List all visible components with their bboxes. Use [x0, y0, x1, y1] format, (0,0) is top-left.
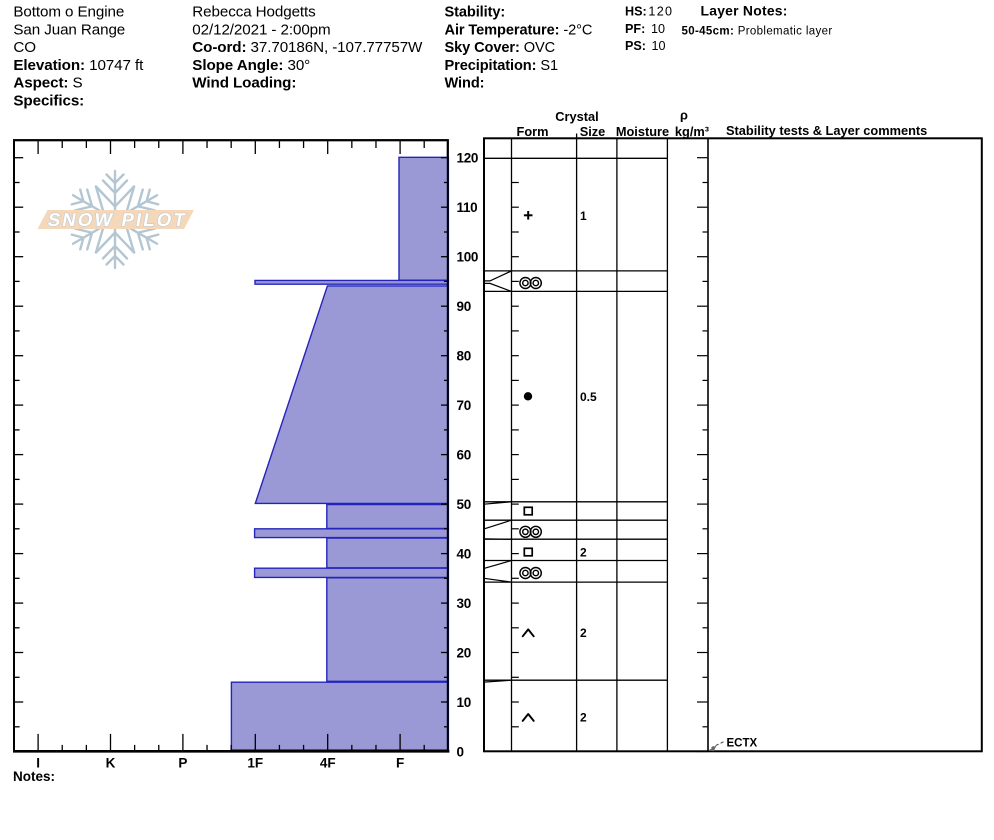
- svg-text:Aspect: S: Aspect: S: [13, 75, 82, 92]
- svg-text:0: 0: [457, 744, 464, 759]
- svg-text:90: 90: [457, 299, 471, 314]
- svg-text:ρ: ρ: [680, 108, 688, 123]
- svg-text:Stability:: Stability:: [445, 5, 506, 21]
- svg-text:PS:10: PS:10: [625, 39, 666, 53]
- svg-text:Crystal: Crystal: [555, 109, 598, 124]
- svg-text:20: 20: [457, 645, 471, 660]
- svg-text:HS:120: HS:120: [625, 4, 673, 18]
- svg-text:60: 60: [457, 447, 471, 462]
- svg-text:Bottom o Engine: Bottom o Engine: [13, 4, 124, 21]
- svg-text:SNOW PILOT: SNOW PILOT: [46, 209, 189, 230]
- svg-text:Rebecca Hodgetts: Rebecca Hodgetts: [192, 4, 316, 21]
- svg-text:Size: Size: [580, 124, 606, 139]
- svg-text:1: 1: [580, 209, 587, 223]
- svg-text:110: 110: [457, 200, 478, 215]
- svg-text:50: 50: [457, 497, 471, 512]
- svg-text:2: 2: [580, 626, 587, 640]
- svg-text:100: 100: [457, 250, 479, 265]
- svg-text:PF:10: PF:10: [625, 22, 665, 36]
- svg-text:ECTX: ECTX: [727, 738, 758, 750]
- svg-text:02/12/2021 - 2:00pm: 02/12/2021 - 2:00pm: [192, 21, 330, 38]
- svg-text:4F: 4F: [320, 755, 336, 770]
- svg-text:F: F: [396, 755, 404, 770]
- svg-text:Form: Form: [517, 124, 549, 139]
- svg-text:Sky Cover: OVC: Sky Cover: OVC: [445, 40, 556, 56]
- svg-text:40: 40: [457, 546, 471, 561]
- svg-text:Moisture: Moisture: [616, 124, 669, 139]
- svg-text:Notes:: Notes:: [13, 769, 55, 784]
- svg-text:P: P: [178, 755, 187, 770]
- svg-text:Wind:: Wind:: [445, 76, 485, 92]
- svg-text:Wind Loading:: Wind Loading:: [192, 75, 296, 92]
- svg-text:80: 80: [457, 349, 471, 364]
- svg-text:50-45cm: Problematic layer: 50-45cm: Problematic layer: [682, 25, 833, 37]
- svg-text:Elevation: 10747 ft: Elevation: 10747 ft: [13, 57, 144, 74]
- svg-text:1F: 1F: [247, 755, 263, 770]
- svg-text:Specifics:: Specifics:: [13, 92, 84, 109]
- svg-text:70: 70: [457, 398, 471, 413]
- svg-text:120: 120: [457, 151, 479, 166]
- svg-text:Stability tests & Layer commen: Stability tests & Layer comments: [726, 123, 927, 138]
- svg-text:Air Temperature: -2°C: Air Temperature: -2°C: [445, 22, 593, 38]
- svg-text:0.5: 0.5: [580, 390, 597, 404]
- svg-text:CO: CO: [13, 39, 36, 56]
- svg-text:Layer Notes:: Layer Notes:: [701, 2, 788, 18]
- svg-text:Precipitation: S1: Precipitation: S1: [445, 58, 558, 74]
- svg-text:10: 10: [457, 695, 471, 710]
- svg-text:K: K: [106, 755, 116, 770]
- svg-text:2: 2: [580, 546, 587, 560]
- svg-text:2: 2: [580, 711, 587, 725]
- svg-text:30: 30: [457, 596, 471, 611]
- svg-text:kg/m³: kg/m³: [675, 124, 709, 139]
- svg-text:Co-ord: 37.70186N, -107.77757W: Co-ord: 37.70186N, -107.77757W: [192, 39, 423, 56]
- svg-text:Slope Angle: 30°: Slope Angle: 30°: [192, 57, 310, 74]
- svg-text:San Juan Range: San Juan Range: [13, 21, 125, 38]
